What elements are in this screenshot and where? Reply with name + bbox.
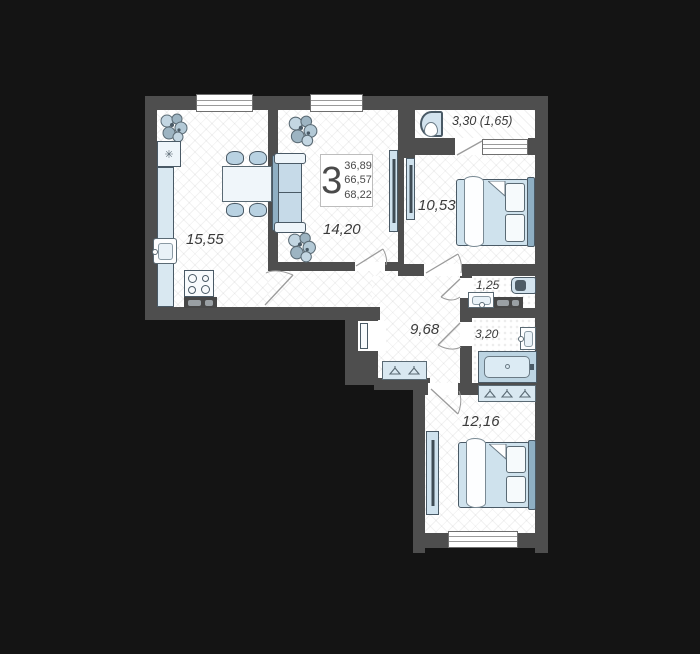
doorway-living xyxy=(355,262,385,271)
snowflake-icon: ✳ xyxy=(164,148,173,161)
hanger-icon xyxy=(483,388,497,399)
basin xyxy=(424,122,438,137)
hanger-icon xyxy=(500,388,514,399)
wall-wet-left-c xyxy=(460,346,472,383)
burner xyxy=(188,286,196,294)
blanket-drape xyxy=(466,438,486,508)
wall-wing-left xyxy=(413,383,425,553)
area-value: 66,57 xyxy=(344,173,372,187)
doorway-balcony xyxy=(455,138,483,155)
wall-bottom-left xyxy=(413,533,448,548)
blanket-drape xyxy=(464,176,484,247)
pillow xyxy=(505,183,525,212)
window-balcony xyxy=(482,139,528,155)
bathroom-sink xyxy=(520,327,536,350)
wall-left xyxy=(145,96,157,320)
tv-bedroom-top xyxy=(406,158,415,220)
window-bedroom-bottom xyxy=(448,531,518,548)
bed xyxy=(456,176,540,248)
tv-bedroom-bottom xyxy=(426,431,439,515)
sofa xyxy=(272,153,308,233)
window-living xyxy=(310,94,363,112)
doorway-bedroom-top xyxy=(424,264,462,276)
cabinet-front xyxy=(497,300,509,306)
hallway-area-label: 9,68 xyxy=(410,321,439,338)
bed-headboard xyxy=(527,177,535,247)
wall-living-bottom-stub xyxy=(385,262,398,271)
stove xyxy=(184,270,214,297)
wardrobe-bedroom-bottom xyxy=(478,385,536,402)
blanket-fold xyxy=(488,181,506,197)
wardrobe-hall xyxy=(382,361,427,380)
kitchen-area-label: 15,55 xyxy=(186,231,224,248)
chair xyxy=(226,151,244,165)
chair xyxy=(249,151,267,165)
kitchen-sink xyxy=(153,238,177,264)
wall-top-mid xyxy=(253,96,310,110)
sink-basin xyxy=(524,331,533,347)
tv-living xyxy=(389,150,398,232)
faucet-icon xyxy=(518,336,524,342)
plant-icon xyxy=(284,231,318,264)
burner xyxy=(202,275,209,282)
cabinet-front xyxy=(188,300,201,306)
kitchen-counter xyxy=(157,167,174,307)
bathtub xyxy=(478,351,537,383)
fridge: ✳ xyxy=(157,141,181,167)
area-value: 36,89 xyxy=(344,159,372,173)
wall-top-right xyxy=(363,96,548,110)
cabinet-front xyxy=(512,300,519,306)
toilet-cabinet xyxy=(494,297,523,308)
burner xyxy=(188,274,197,283)
doorway-bedroom-bottom xyxy=(428,383,458,395)
area-value: 68,22 xyxy=(344,188,372,202)
bed xyxy=(458,438,540,510)
bedroom-bottom-area-label: 12,16 xyxy=(462,413,500,430)
faucet-icon xyxy=(152,249,158,255)
drain xyxy=(505,364,510,369)
hanger-icon xyxy=(518,388,532,399)
toilet-sink xyxy=(468,292,494,308)
sofa-armrest xyxy=(274,153,306,164)
wall-living-bedroom xyxy=(398,140,404,276)
sink-basin xyxy=(158,243,173,260)
tub-faucet-icon xyxy=(530,364,534,370)
wall-bedroom-top-b xyxy=(528,138,535,155)
hanger-icon xyxy=(407,365,421,376)
apartment-info-box: 3 36,89 66,57 68,22 xyxy=(320,154,373,207)
toilet-wc xyxy=(511,277,536,294)
sofa-cushion-divider xyxy=(279,192,301,193)
wc-seat xyxy=(515,280,526,291)
chair xyxy=(226,203,244,217)
wall-bedroom2-top-a xyxy=(413,383,428,395)
balcony-corner-unit xyxy=(420,111,443,137)
pillow xyxy=(505,214,525,242)
burner xyxy=(201,285,210,294)
floor-plan: ✳ 3 36,89 66, xyxy=(0,0,700,654)
dining-table xyxy=(222,166,272,202)
bathroom-area-label: 3,20 xyxy=(475,327,498,341)
hanger-icon xyxy=(388,365,402,376)
bedroom-top-area-label: 10,53 xyxy=(418,197,456,214)
wall-bedroom1-bottom-a xyxy=(398,264,424,276)
balcony-area-label: 3,30 (1,65) xyxy=(452,114,512,128)
living-area-label: 14,20 xyxy=(323,221,361,238)
plant-icon xyxy=(286,114,318,148)
wall-bedroom-top-a xyxy=(415,138,455,155)
wall-bedroom1-bottom-b xyxy=(462,264,535,276)
blanket-fold xyxy=(489,444,507,460)
window-kitchen xyxy=(196,94,253,112)
cabinet-front xyxy=(205,300,213,306)
kitchen-low-cabinet xyxy=(184,297,217,308)
entrance-door-leaf xyxy=(360,323,368,349)
chair xyxy=(249,203,267,217)
pillow xyxy=(506,446,526,473)
sofa-seat xyxy=(278,163,302,223)
faucet-icon xyxy=(479,302,485,308)
wall-toilet-bath-divider xyxy=(460,308,535,318)
pillow xyxy=(506,476,526,503)
toilet-area-label: 1,25 xyxy=(476,278,499,292)
plant-icon xyxy=(158,112,188,144)
rooms-count: 3 xyxy=(321,162,342,200)
bed-headboard xyxy=(528,440,536,510)
doorway-bathroom xyxy=(460,322,472,346)
